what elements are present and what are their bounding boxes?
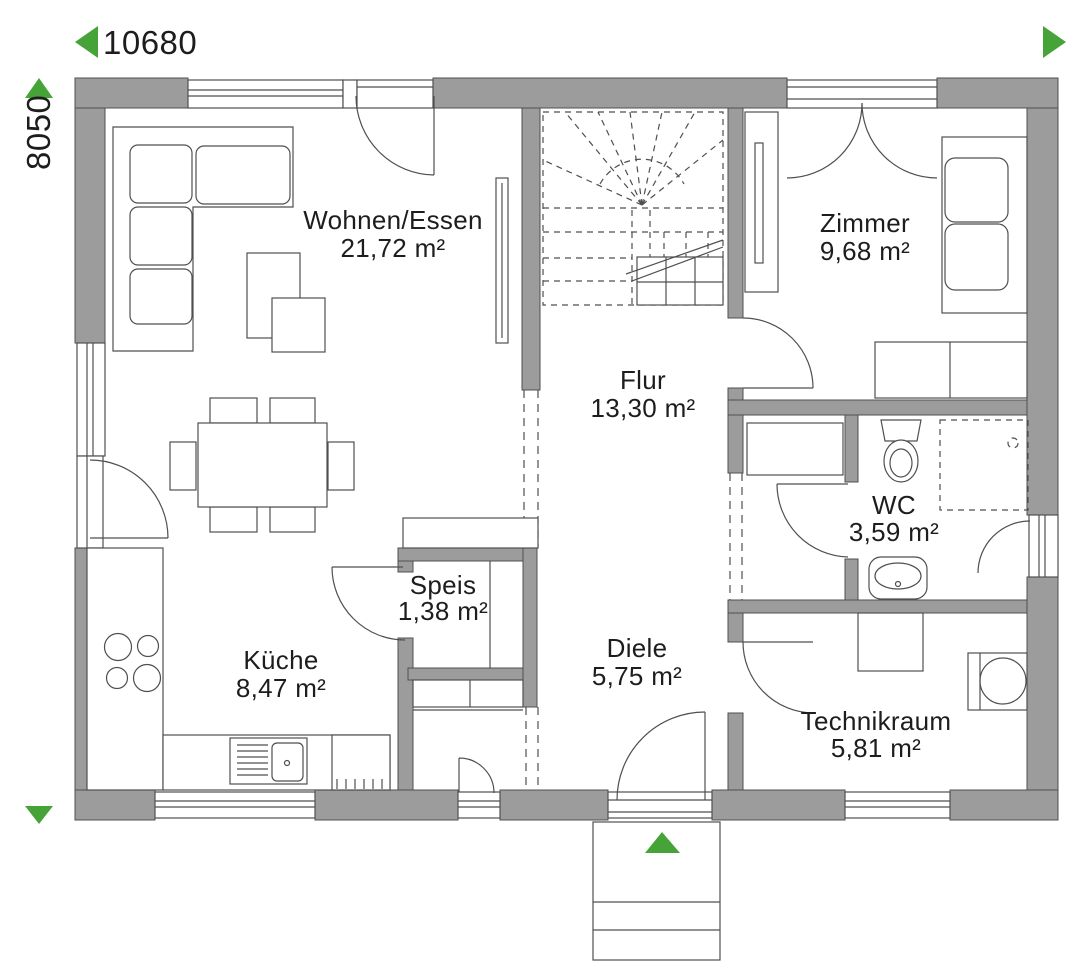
wall-segment bbox=[75, 108, 105, 343]
wall-segment bbox=[398, 638, 413, 790]
cabinet-icon bbox=[413, 680, 523, 707]
room-name-flur: Flur bbox=[620, 365, 666, 395]
sofa-cushion bbox=[130, 269, 192, 324]
room-area-zimmer: 9,68 m² bbox=[820, 236, 910, 266]
kitchen-counter bbox=[87, 548, 163, 790]
floor-plan: 10680 8050 bbox=[0, 0, 1080, 975]
wall-segment bbox=[315, 790, 458, 820]
open-boundaries bbox=[524, 390, 742, 790]
door-zimmer bbox=[743, 318, 813, 388]
wall-segment bbox=[433, 78, 787, 108]
room-name-wohnen: Wohnen/Essen bbox=[303, 205, 482, 235]
wall-segment bbox=[728, 713, 743, 790]
wall-segment bbox=[950, 790, 1058, 820]
wardrobe-rail bbox=[755, 143, 763, 263]
wall-segment bbox=[500, 790, 608, 820]
dishwasher-icon bbox=[332, 735, 390, 790]
window-kitchen bbox=[155, 792, 315, 818]
wall-segment bbox=[1027, 108, 1058, 515]
wall-segment bbox=[75, 790, 155, 820]
wall-segment bbox=[398, 548, 537, 561]
room-area-kueche: 8,47 m² bbox=[236, 673, 326, 703]
room-area-speis: 1,38 m² bbox=[398, 596, 488, 626]
door-terrace-left bbox=[77, 456, 168, 548]
fixtures-technikraum bbox=[858, 613, 1027, 710]
door-wc bbox=[777, 484, 848, 557]
room-area-flur: 13,30 m² bbox=[590, 393, 695, 423]
window-left bbox=[77, 343, 105, 456]
sofa-cushion bbox=[196, 146, 290, 204]
room-name-zimmer: Zimmer bbox=[820, 208, 910, 238]
wall-segment bbox=[728, 400, 1027, 415]
dimension-height-label: 8050 bbox=[20, 95, 57, 170]
wall-segment bbox=[523, 548, 537, 707]
room-name-wc: WC bbox=[872, 490, 916, 520]
sofa-cushion bbox=[130, 207, 192, 265]
window-technikraum bbox=[845, 792, 950, 818]
stairs-icon bbox=[543, 112, 723, 305]
door-entrance bbox=[608, 712, 712, 818]
wall-segment bbox=[75, 78, 188, 108]
dimension-arrow-left-icon bbox=[75, 26, 98, 58]
wall-segment bbox=[937, 78, 1058, 108]
wall-segment bbox=[408, 668, 523, 680]
room-area-wc: 3,59 m² bbox=[849, 517, 939, 547]
dimension-arrow-down-icon bbox=[25, 806, 53, 824]
room-name-diele: Diele bbox=[607, 633, 668, 663]
floor-plan-canvas: 10680 8050 bbox=[0, 0, 1080, 975]
shower-icon bbox=[940, 420, 1028, 510]
wall-segment bbox=[845, 415, 858, 482]
room-name-technikraum: Technikraum bbox=[801, 706, 952, 736]
toilet-icon bbox=[881, 420, 921, 482]
couch-icon bbox=[942, 137, 1027, 313]
furniture-living bbox=[113, 127, 508, 532]
dimension-arrow-right-icon bbox=[1043, 26, 1066, 58]
furniture-kitchen bbox=[87, 548, 390, 790]
window-narrow-diele bbox=[458, 758, 500, 818]
wall-segment bbox=[728, 108, 743, 318]
wall-segment bbox=[1027, 577, 1058, 790]
door-living-top bbox=[356, 80, 434, 175]
washbasin-icon bbox=[869, 557, 927, 599]
dining-set-icon bbox=[170, 398, 354, 532]
door-speis bbox=[332, 567, 405, 640]
wall-segment bbox=[712, 790, 845, 820]
room-name-kueche: Küche bbox=[243, 645, 318, 675]
room-area-wohnen: 21,72 m² bbox=[340, 233, 445, 263]
kitchen-sink-icon bbox=[230, 738, 307, 784]
boiler-icon bbox=[858, 613, 923, 671]
window-wc-right bbox=[978, 515, 1058, 577]
wall-segment bbox=[522, 108, 540, 390]
desk-icon bbox=[875, 342, 1027, 398]
wall-segment bbox=[728, 600, 1027, 613]
side-table-icon bbox=[272, 298, 325, 352]
cabinet-icon bbox=[747, 423, 843, 475]
room-area-technikraum: 5,81 m² bbox=[831, 733, 921, 763]
door-technikraum bbox=[743, 642, 813, 713]
wall-segment bbox=[845, 559, 858, 600]
room-area-diele: 5,75 m² bbox=[592, 661, 682, 691]
entrance-porch bbox=[593, 822, 720, 960]
window-living-top bbox=[188, 80, 357, 108]
shelf-icon bbox=[403, 518, 538, 548]
wall-segment bbox=[728, 613, 743, 642]
sofa-cushion bbox=[130, 145, 192, 203]
dimension-width-label: 10680 bbox=[103, 24, 197, 61]
washing-machine-icon bbox=[968, 653, 1027, 710]
wall-segment bbox=[728, 415, 743, 473]
door-french-zimmer bbox=[787, 80, 937, 178]
